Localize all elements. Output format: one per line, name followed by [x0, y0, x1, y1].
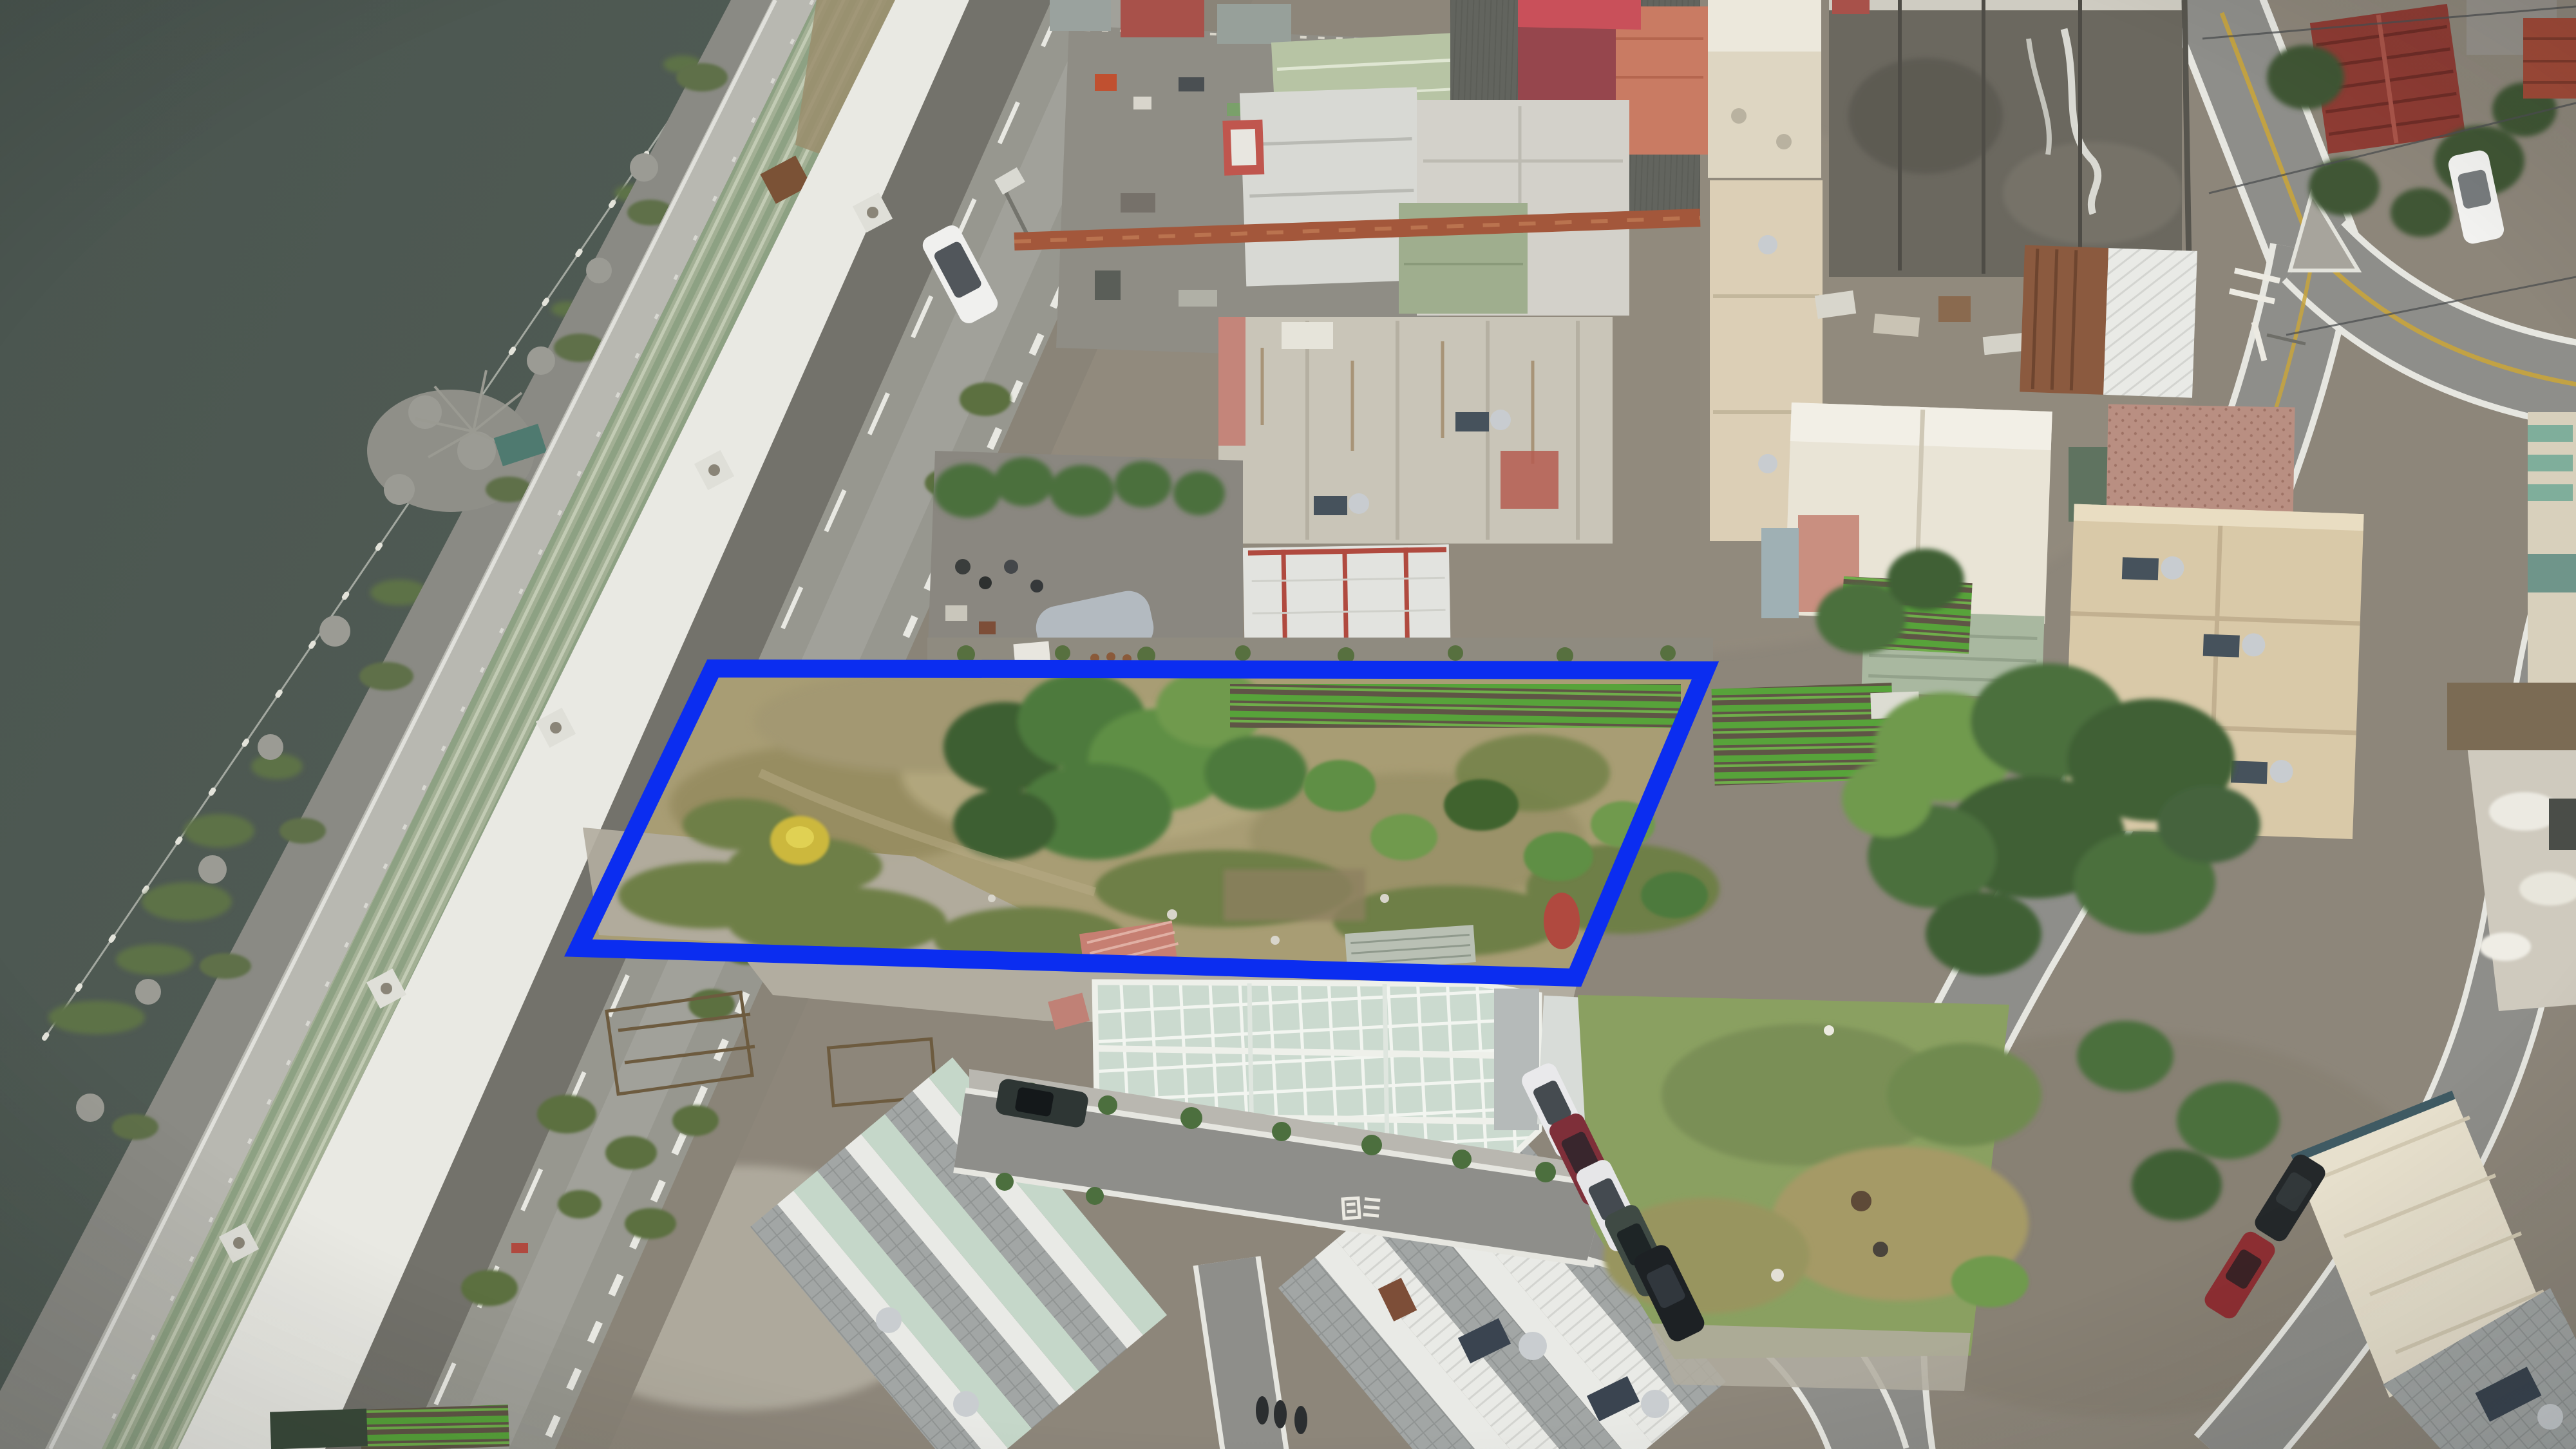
parcel-plant-cluster	[943, 670, 1307, 860]
car-dark-east-road	[2251, 1151, 2329, 1244]
river	[0, 0, 731, 1391]
road-side-lane	[1135, 40, 1278, 113]
weathered-rowhouses	[1218, 317, 1613, 544]
floating-boom-line	[44, 90, 690, 1038]
rock-texture	[76, 153, 658, 1122]
brick-courtyard	[2106, 404, 2295, 526]
southwest-gardens	[270, 992, 936, 1449]
parcel-outline	[578, 668, 1705, 978]
car-white-levee-road	[920, 222, 1001, 327]
courtyard-with-covered-car	[927, 451, 1243, 670]
south-development	[750, 982, 2041, 1449]
garden-bushes	[461, 1095, 719, 1306]
gray-paver-houses-corner	[2383, 1288, 2576, 1449]
road-marking-stop-south	[1343, 1197, 1381, 1218]
banana-plants-row	[1303, 760, 1708, 918]
junction-road-marking	[2230, 270, 2280, 361]
pole-shadows	[2157, 335, 2306, 703]
boom-buoys	[44, 90, 690, 1038]
shed-roof-red	[1121, 0, 1204, 37]
cream-houses-column	[1710, 180, 1823, 541]
parcel-interior	[578, 668, 1719, 978]
corrugated-sheets	[1079, 893, 1580, 978]
riverside-signboard	[494, 424, 547, 466]
green-metal-roof-building	[1271, 32, 1470, 148]
white-warehouse	[1781, 402, 2052, 699]
shoulder-bushes	[688, 383, 1011, 1020]
yard-clutter	[1095, 74, 1305, 307]
rust-and-white-roof-building	[2020, 245, 2197, 398]
grass-vacant-lot	[1578, 995, 2041, 1391]
rubble-lot	[2447, 683, 2576, 1011]
development-roads	[960, 1069, 1871, 1449]
white-house-b	[1399, 100, 1629, 316]
levee-walkway	[45, 0, 817, 1449]
north-building-cluster	[927, 0, 1823, 712]
gravel-apron-below-parcel	[741, 953, 1578, 1034]
pink-tile-entry-roof	[1798, 515, 1859, 612]
red-sack	[1544, 893, 1580, 949]
road-worn-band	[451, 0, 1153, 1449]
slope-dry-patch	[795, 0, 895, 167]
vehicles	[920, 149, 2506, 1345]
cream-tower	[1708, 0, 1821, 178]
hedge-bushes	[996, 1083, 1556, 1205]
yellow-center-line	[2222, 13, 2306, 232]
levee	[0, 0, 1052, 1449]
car-red-east-road	[2201, 1228, 2278, 1321]
levee-land-slope	[325, 0, 1052, 1449]
vegetable-garden-east	[1711, 683, 1895, 786]
vignette	[0, 0, 2576, 1449]
levee-crest	[178, 0, 969, 1449]
gray-roof-topright	[2467, 0, 2557, 55]
green-awning-building	[2528, 412, 2576, 683]
car-red-lot	[1546, 1110, 1620, 1207]
solar-panels-south	[1378, 1278, 1669, 1421]
road-edge-line-west	[417, 5, 1061, 1446]
parcel-top-hedgerow	[927, 638, 1713, 671]
scooters	[1256, 1396, 1307, 1434]
pink-floor-patch	[1048, 993, 1090, 1030]
dead-tree	[415, 370, 522, 457]
red-tile-roof-corner	[2523, 18, 2576, 99]
road-marking-stop-east	[2508, 963, 2535, 990]
car-green-lot	[1602, 1202, 1675, 1299]
gravel-yard	[1056, 26, 1439, 361]
parcel-weeds	[618, 734, 1719, 971]
bottomright-block	[2077, 1021, 2576, 1449]
red-roof-house	[1518, 0, 1708, 161]
dark-corrugated-roof-building	[1450, 0, 1700, 227]
junk-yard-small	[1815, 290, 2026, 355]
road-sign-board	[994, 167, 1025, 195]
parcel-gravel-area	[583, 828, 1095, 961]
parcel-vegetable-rows	[1230, 684, 1681, 728]
car-dark-dev-road	[994, 1077, 1090, 1128]
slope-stairs	[760, 155, 811, 204]
shore-vegetation	[112, 63, 728, 1140]
walkway-benches	[633, 110, 837, 688]
garden-trellis	[607, 992, 936, 1106]
east-gardens-and-orchard	[1711, 549, 2260, 976]
shed-roof-sage	[1217, 4, 1291, 44]
floating-weeds	[48, 55, 702, 1034]
rowhouse-block-southeast	[1278, 1105, 1726, 1449]
cream-flat-roof-houses	[2063, 504, 2363, 839]
vegetable-plot	[360, 1405, 509, 1449]
car-white-lot-2	[1573, 1157, 1647, 1254]
levee-grass-slope	[102, 0, 895, 1449]
dark-green-canopy	[2069, 447, 2111, 522]
road-asphalt	[408, 0, 1199, 1449]
road-sign-poles	[697, 190, 1029, 858]
dark-flat-rooftops	[1829, 0, 2190, 303]
road-shoulder-east	[555, 0, 1253, 1449]
courtyard-clutter	[945, 559, 1043, 634]
white-red-trim-house	[1243, 544, 1452, 712]
blue-gray-shed	[1761, 528, 1799, 618]
power-lines	[2202, 6, 2576, 335]
solar-water-heaters	[1314, 410, 1511, 515]
levee-road	[408, 0, 1278, 1449]
rowhouse-block-southwest	[750, 1057, 1167, 1449]
white-house-a	[1222, 87, 1423, 287]
riprap-rocks	[0, 0, 772, 1449]
car-white-lot-1	[1519, 1061, 1593, 1160]
shade-net-plot	[270, 1408, 368, 1449]
slope-utility-plaques	[219, 193, 893, 1263]
small-red-object	[511, 1243, 528, 1253]
shed-roof-gray	[1050, 0, 1111, 31]
glass-canopy-complex	[1048, 982, 1603, 1186]
junction-island	[2290, 193, 2358, 270]
car-under-cover	[1032, 587, 1157, 668]
cream-warehouse-roof	[2293, 1095, 2550, 1397]
walkway-curb-line	[50, 0, 775, 1449]
mini-greenhouse	[1870, 692, 1919, 719]
solar-water-heaters-east	[2115, 554, 2300, 784]
walkway-fence-posts	[98, 0, 813, 1449]
east-roads	[1882, 0, 2576, 1449]
east-building-cluster	[1761, 0, 2576, 1011]
aerial-photo	[0, 0, 2576, 1449]
car-white-junction	[2447, 149, 2506, 245]
corner-trees	[2077, 1021, 2280, 1220]
brick-wall	[1014, 218, 1700, 241]
car-black-lot	[1631, 1242, 1708, 1344]
orchard-trees	[1816, 549, 2260, 976]
road-curb-dashes-east	[544, 5, 1188, 1446]
junction-trees	[2267, 45, 2557, 237]
red-hip-roof-house	[2310, 4, 2465, 154]
terrain-base	[0, 0, 2576, 1449]
vegetable-garden-north	[1840, 576, 1972, 654]
sidewalk	[969, 1069, 1591, 1184]
water-surface	[0, 0, 731, 1391]
yellow-shrub	[770, 816, 829, 865]
white-cart	[1013, 641, 1050, 669]
